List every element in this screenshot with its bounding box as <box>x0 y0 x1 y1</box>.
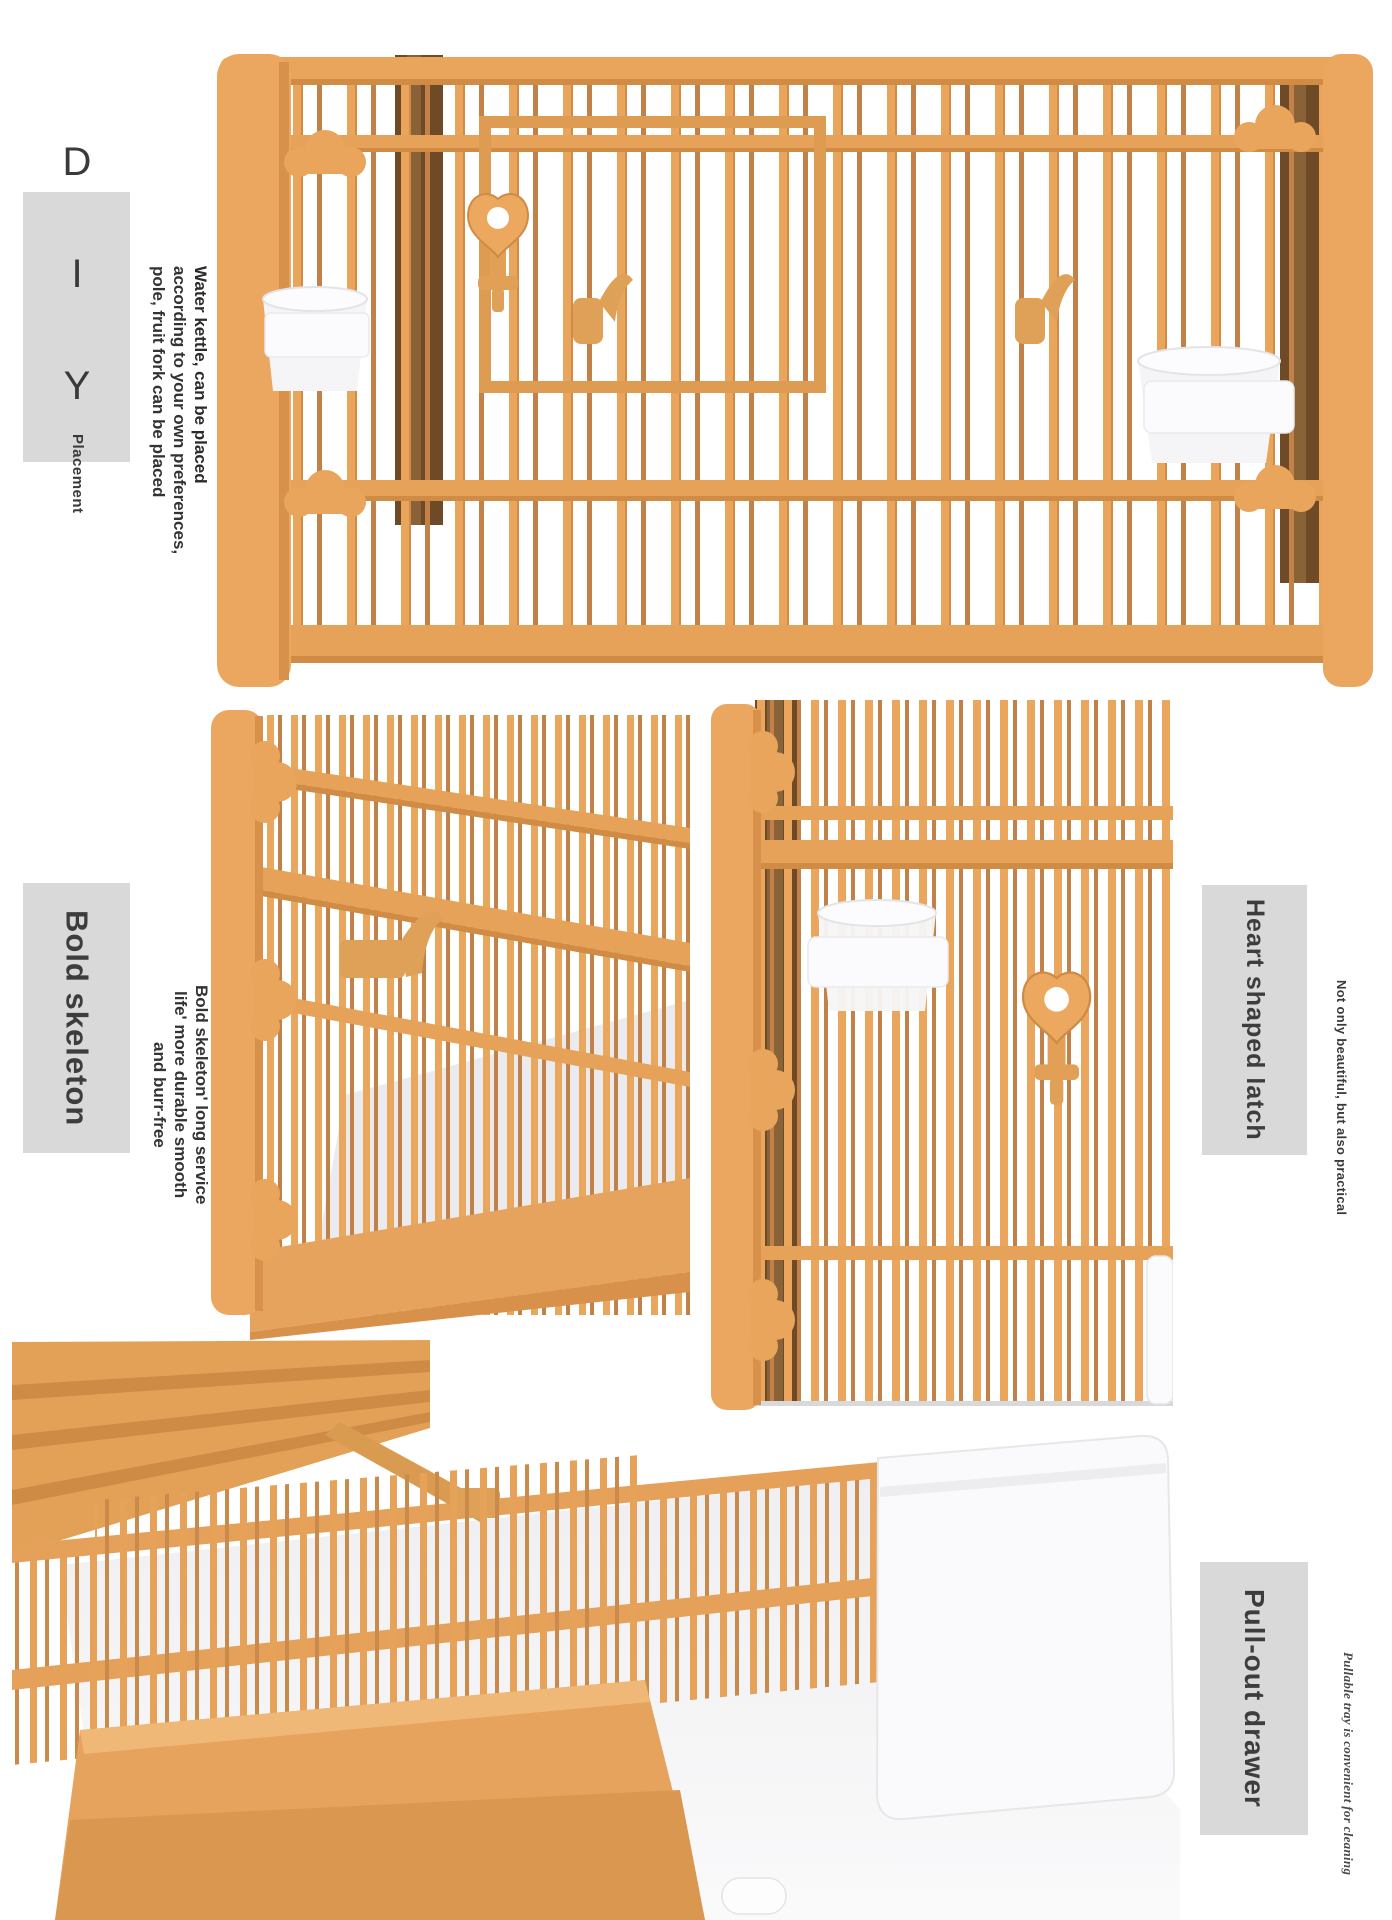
diy-description-line-3: pole, fruit fork can be placed <box>148 266 169 606</box>
heart-latch-note: Not only beautiful, but also practical <box>1334 980 1349 1260</box>
heart-latch-label-text: Heart shaped latch <box>1240 899 1269 1141</box>
bold-skeleton-label-text: Bold skeleton <box>59 910 95 1126</box>
diy-description: Water kettle, can be placed according to… <box>145 266 211 606</box>
photo-cage-front <box>185 40 1373 687</box>
cage-right-post <box>1323 54 1373 687</box>
feeder-cup-left <box>263 287 369 391</box>
skeleton-description-line-3: and burr-free <box>149 935 170 1255</box>
cage-bars <box>751 700 1173 1406</box>
bold-skeleton-description: Bold skeleton' long service life' more d… <box>146 935 212 1255</box>
pullout-drawer-label: Pull-out drawer <box>1200 1562 1308 1835</box>
diy-placement-label: D I Y Placement <box>23 192 130 462</box>
pullout-drawer-note: Pullable tray is convenient for cleaning <box>1340 1652 1356 1912</box>
photo-latch-closeup <box>703 700 1173 1415</box>
photo-pullout-drawer <box>0 1340 1180 1920</box>
photo-cage-corner <box>195 700 690 1340</box>
diy-heading: D I Y <box>55 140 99 420</box>
diy-subheading: Placement <box>69 424 86 514</box>
diy-description-line-1: Water kettle, can be placed <box>190 266 211 606</box>
drawer-knob <box>722 1878 786 1914</box>
heart-latch-label: Heart shaped latch <box>1202 885 1307 1155</box>
product-detail-page: D I Y Placement Water kettle, can be pla… <box>0 0 1392 1920</box>
diy-description-line-2: according to your own preferences, <box>169 266 190 606</box>
pullout-drawer-label-text: Pull-out drawer <box>1238 1589 1270 1808</box>
skeleton-description-line-1: Bold skeleton' long service <box>191 935 212 1255</box>
diy-label-text: D I Y Placement <box>54 140 99 514</box>
bold-skeleton-label: Bold skeleton <box>23 883 130 1153</box>
skeleton-description-line-2: life' more durable smooth <box>170 935 191 1255</box>
